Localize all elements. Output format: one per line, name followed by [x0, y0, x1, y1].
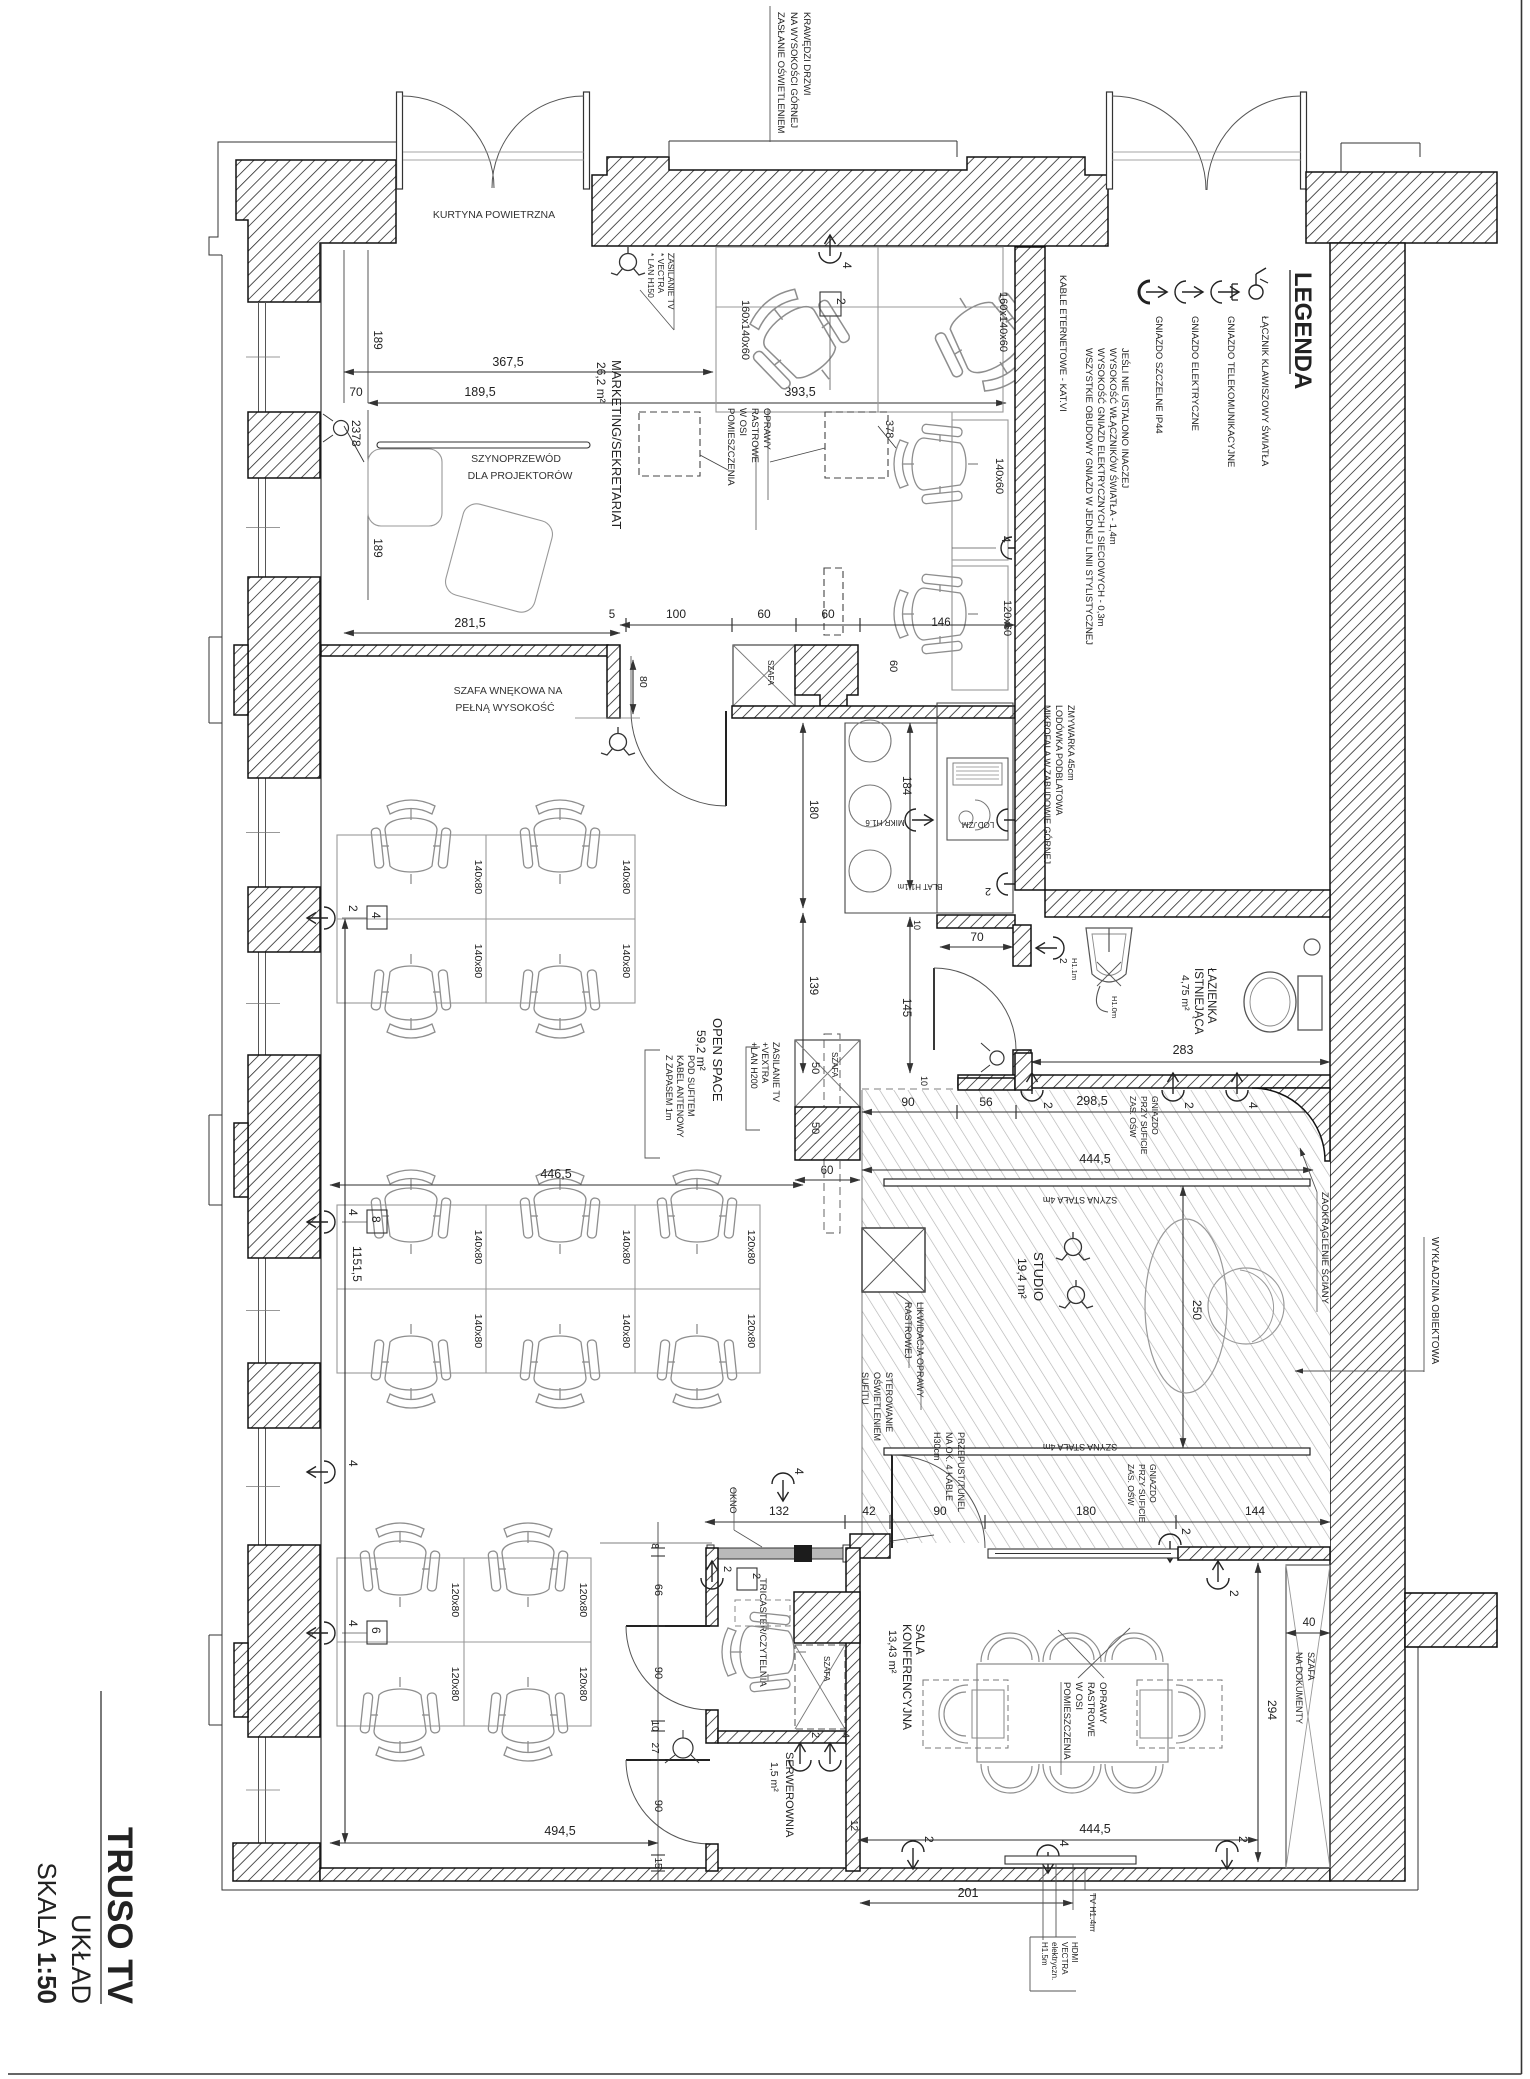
svg-text:4: 4: [346, 1209, 360, 1216]
svg-text:KABEL ANTENOWY: KABEL ANTENOWY: [675, 1055, 685, 1138]
svg-text:+LAN H200: +LAN H200: [749, 1042, 759, 1089]
svg-text:+VEXTRA: +VEXTRA: [760, 1042, 770, 1083]
svg-text:Z ZAPASEM 1m: Z ZAPASEM 1m: [664, 1055, 674, 1120]
svg-text:DLA PROJEKTORÓW: DLA PROJEKTORÓW: [468, 469, 573, 482]
svg-text:2: 2: [1236, 1836, 1250, 1843]
svg-text:2: 2: [809, 1732, 821, 1738]
svg-text:4: 4: [792, 1468, 806, 1475]
svg-text:SZAFA: SZAFA: [830, 1052, 839, 1078]
svg-text:120x80: 120x80: [449, 1583, 461, 1618]
svg-text:4: 4: [369, 912, 383, 919]
svg-text:189: 189: [371, 330, 383, 349]
svg-text:27: 27: [649, 1742, 660, 1754]
svg-text:STUDIO: STUDIO: [1031, 1252, 1046, 1301]
svg-text:140x60: 140x60: [993, 458, 1005, 494]
svg-text:19,4 m²: 19,4 m²: [1015, 1258, 1029, 1299]
svg-text:60: 60: [821, 607, 835, 621]
svg-text:1,5 m²: 1,5 m²: [768, 1762, 780, 1792]
svg-text:283: 283: [1173, 1043, 1194, 1057]
svg-text:SZAFA: SZAFA: [766, 660, 775, 686]
svg-text:42: 42: [862, 1504, 876, 1518]
svg-text:6: 6: [369, 1627, 383, 1634]
svg-text:120x60: 120x60: [1001, 600, 1013, 636]
svg-text:10: 10: [919, 1076, 929, 1086]
svg-text:4,75 m²: 4,75 m²: [1179, 975, 1191, 1011]
svg-text:2: 2: [922, 1836, 936, 1843]
svg-text:MIKROFALA W ZABUDOWIE GÓRNEJ: MIKROFALA W ZABUDOWIE GÓRNEJ: [1042, 705, 1052, 864]
svg-text:MARKETING/SEKRETARIAT: MARKETING/SEKRETARIAT: [609, 360, 624, 529]
svg-text:TRICASTER/CZYTELNIA: TRICASTER/CZYTELNIA: [757, 1578, 768, 1687]
svg-text:56: 56: [979, 1095, 993, 1109]
svg-text:H1.0m: H1.0m: [1110, 996, 1119, 1018]
svg-text:80: 80: [637, 676, 649, 688]
svg-text:140x80: 140x80: [620, 860, 632, 895]
svg-text:250: 250: [1190, 1300, 1204, 1320]
svg-text:GNIAZDO: GNIAZDO: [1148, 1464, 1158, 1503]
svg-text:KABLE ETERNETOWE - KAT.VI: KABLE ETERNETOWE - KAT.VI: [1057, 275, 1068, 412]
svg-text:4: 4: [999, 536, 1013, 543]
svg-text:60: 60: [887, 660, 899, 672]
svg-text:180: 180: [1076, 1504, 1096, 1518]
svg-text:2: 2: [1057, 958, 1068, 964]
svg-text:1151,5: 1151,5: [350, 1246, 364, 1282]
svg-text:4: 4: [346, 1620, 360, 1627]
svg-text:OPRAWY: OPRAWY: [1097, 1682, 1108, 1725]
svg-text:2: 2: [1179, 1528, 1193, 1535]
svg-text:TRUSO TV: TRUSO TV: [100, 1827, 139, 2005]
svg-text:494,5: 494,5: [544, 1824, 575, 1838]
svg-text:160x140x60: 160x140x60: [997, 292, 1009, 352]
svg-text:LODÓWKA PODBLATOWA: LODÓWKA PODBLATOWA: [1054, 705, 1064, 815]
svg-text:367,5: 367,5: [492, 355, 523, 369]
svg-text:10: 10: [912, 920, 922, 930]
svg-text:ISTNIEJĄCA: ISTNIEJĄCA: [1192, 968, 1204, 1035]
svg-text:140x80: 140x80: [620, 1314, 632, 1349]
svg-text:2: 2: [346, 905, 360, 912]
svg-text:SALA: SALA: [913, 1624, 927, 1655]
svg-text:180: 180: [807, 800, 819, 819]
svg-text:SZAFA: SZAFA: [1306, 1652, 1316, 1681]
svg-text:RASTROWE: RASTROWE: [1085, 1682, 1096, 1737]
svg-text:144: 144: [1245, 1504, 1265, 1518]
svg-text:4: 4: [840, 262, 854, 269]
svg-text:15: 15: [652, 1857, 663, 1869]
svg-text:120x80: 120x80: [577, 1583, 589, 1618]
svg-text:POMIESZCZENIA: POMIESZCZENIA: [725, 408, 736, 486]
svg-text:146: 146: [931, 617, 950, 629]
svg-text:ŁĄCZNIK KLAWISZOWY ŚWIATŁA: ŁĄCZNIK KLAWISZOWY ŚWIATŁA: [1259, 316, 1271, 467]
svg-text:90: 90: [652, 1667, 664, 1679]
svg-text:60: 60: [757, 607, 771, 621]
svg-text:140x80: 140x80: [620, 1230, 632, 1265]
svg-text:4: 4: [346, 1460, 360, 1467]
svg-text:OPEN SPACE: OPEN SPACE: [710, 1018, 725, 1102]
svg-text:281,5: 281,5: [454, 616, 485, 630]
svg-text:H1.1m: H1.1m: [1070, 958, 1079, 980]
svg-text:378: 378: [883, 420, 895, 438]
svg-text:4: 4: [839, 1732, 851, 1738]
svg-text:GNIAZDO ELEKTRYCZNE: GNIAZDO ELEKTRYCZNE: [1189, 316, 1200, 431]
svg-text:60: 60: [821, 1165, 834, 1177]
svg-text:26,2 m²: 26,2 m²: [594, 362, 608, 403]
svg-text:OŚWIETLENIEM: OŚWIETLENIEM: [872, 1372, 883, 1441]
svg-text:SZAFA: SZAFA: [822, 1656, 831, 1682]
svg-text:ZAOKRĄGLENIE ŚCIANY: ZAOKRĄGLENIE ŚCIANY: [1319, 1192, 1331, 1305]
svg-text:* LAN H150: * LAN H150: [646, 253, 656, 298]
svg-text:120x80: 120x80: [745, 1230, 757, 1265]
svg-text:189: 189: [371, 538, 383, 557]
svg-text:W OSI: W OSI: [737, 408, 748, 436]
svg-text:NA OK. 4 KABLE: NA OK. 4 KABLE: [944, 1432, 954, 1501]
svg-text:13,43 m²: 13,43 m²: [886, 1630, 898, 1674]
svg-text:VECTRA: VECTRA: [1060, 1942, 1069, 1975]
svg-text:PRZY SUFICIE: PRZY SUFICIE: [1137, 1464, 1147, 1523]
svg-text:SUFITU: SUFITU: [860, 1372, 870, 1405]
svg-text:GNIAZDO: GNIAZDO: [1150, 1096, 1160, 1135]
svg-text:140x80: 140x80: [472, 860, 484, 895]
svg-text:OKNO: OKNO: [728, 1487, 738, 1514]
svg-text:70: 70: [349, 385, 363, 399]
svg-text:WSZYSTKIE OBUDOWY GNIAZD W JED: WSZYSTKIE OBUDOWY GNIAZD W JEDNEJ LINII …: [1083, 348, 1094, 645]
svg-text:POD SUFITEM: POD SUFITEM: [686, 1055, 696, 1117]
svg-text:ZAS. OŚW: ZAS. OŚW: [1128, 1096, 1139, 1138]
svg-text:201: 201: [958, 1886, 979, 1900]
svg-text:STEROWANIE: STEROWANIE: [884, 1372, 894, 1432]
svg-text:444,5: 444,5: [1079, 1152, 1110, 1166]
svg-text:HDMI: HDMI: [1070, 1942, 1079, 1962]
svg-text:LOD./ZM: LOD./ZM: [961, 820, 994, 829]
svg-text:12: 12: [848, 1820, 859, 1832]
svg-text:189,5: 189,5: [464, 385, 495, 399]
svg-text:446,5: 446,5: [540, 1167, 571, 1181]
svg-text:GNIAZDO TELEKOMUNIKACYJNE: GNIAZDO TELEKOMUNIKACYJNE: [1225, 316, 1236, 467]
svg-text:ZMYWARKA 45cm: ZMYWARKA 45cm: [1066, 705, 1076, 781]
svg-text:LIKWIDACJA OPRAWY: LIKWIDACJA OPRAWY: [915, 1302, 925, 1398]
svg-text:WYSOKOŚĆ WŁĄCZNIKÓW ŚWIATŁA -: WYSOKOŚĆ WŁĄCZNIKÓW ŚWIATŁA - 1,4m: [1107, 348, 1119, 545]
svg-text:132: 132: [769, 1504, 789, 1518]
svg-text:NA WYSOKOŚCI GÓRNEJ: NA WYSOKOŚCI GÓRNEJ: [788, 12, 800, 128]
svg-text:RASTROWEJ: RASTROWEJ: [903, 1302, 913, 1359]
svg-text:PRZEPUST/TUNEL: PRZEPUST/TUNEL: [956, 1432, 966, 1512]
svg-text:OPRAWY: OPRAWY: [761, 408, 772, 451]
svg-text:4: 4: [1246, 1102, 1260, 1109]
svg-text:WYSOKOŚĆ GNIAZD ELEKTRYCZNYCH: WYSOKOŚĆ GNIAZD ELEKTRYCZNYCH I SIECIOWY…: [1095, 348, 1107, 627]
svg-text:184: 184: [900, 776, 912, 796]
svg-text:KURTYNA POWIETRZNA: KURTYNA POWIETRZNA: [433, 209, 555, 221]
svg-text:444,5: 444,5: [1079, 1822, 1110, 1836]
svg-text:8: 8: [649, 1543, 660, 1549]
svg-text:elektryczn.: elektryczn.: [1050, 1942, 1059, 1980]
svg-text:NA DOKUMENTY: NA DOKUMENTY: [1294, 1652, 1304, 1724]
svg-text:66: 66: [652, 1584, 664, 1596]
svg-text:139: 139: [807, 976, 819, 995]
svg-text:50: 50: [809, 1122, 821, 1134]
svg-text:140x80: 140x80: [620, 944, 632, 979]
svg-text:140x80: 140x80: [472, 1230, 484, 1265]
svg-text:90: 90: [901, 1095, 915, 1109]
svg-text:W OSI: W OSI: [1073, 1682, 1084, 1710]
svg-text:ŁAZIENKA: ŁAZIENKA: [1205, 968, 1217, 1024]
svg-text:GNIAZDO SZCZELNE IP44: GNIAZDO SZCZELNE IP44: [1153, 316, 1164, 434]
svg-text:ZAS. OŚW: ZAS. OŚW: [1126, 1464, 1137, 1506]
svg-text:160x140x60: 160x140x60: [739, 300, 751, 360]
svg-text:145: 145: [900, 998, 912, 1017]
svg-text:40: 40: [1303, 1617, 1316, 1629]
svg-text:MIKR H1.6: MIKR H1.6: [865, 818, 905, 827]
svg-text:PRZY SUFICIE: PRZY SUFICIE: [1139, 1096, 1149, 1155]
svg-text:2: 2: [985, 885, 991, 897]
svg-text:120x80: 120x80: [449, 1667, 461, 1702]
svg-text:ZASŁANIE OŚWIETLENIEM: ZASŁANIE OŚWIETLENIEM: [775, 12, 787, 133]
svg-text:BLAT H1.1m: BLAT H1.1m: [897, 882, 942, 891]
svg-text:100: 100: [666, 607, 686, 621]
svg-text:SZYNOPRZEWÓD: SZYNOPRZEWÓD: [471, 452, 561, 465]
svg-text:70: 70: [970, 930, 984, 944]
svg-text:2: 2: [721, 1566, 733, 1572]
svg-text:2: 2: [750, 1573, 762, 1579]
svg-text:2: 2: [1182, 1102, 1196, 1109]
svg-text:H30cm: H30cm: [932, 1432, 942, 1461]
svg-text:* VECTRA: * VECTRA: [656, 253, 666, 293]
svg-text:UKŁAD: UKŁAD: [66, 1914, 96, 2004]
svg-text:TV H1.4m: TV H1.4m: [1088, 1893, 1098, 1931]
svg-text:H1.5m: H1.5m: [1040, 1942, 1049, 1966]
svg-text:140x80: 140x80: [472, 944, 484, 979]
svg-text:SERWEROWNIA: SERWEROWNIA: [783, 1752, 795, 1838]
svg-text:140x80: 140x80: [472, 1314, 484, 1349]
svg-text:PEŁNĄ WYSOKOŚĆ: PEŁNĄ WYSOKOŚĆ: [455, 701, 555, 714]
svg-text:5: 5: [609, 609, 615, 621]
svg-text:KRAWĘDZI DRZWI: KRAWĘDZI DRZWI: [801, 12, 812, 96]
svg-text:ZASILANIE TV: ZASILANIE TV: [771, 1042, 781, 1102]
svg-text:2: 2: [1041, 1102, 1055, 1109]
svg-text:298,5: 298,5: [1076, 1094, 1107, 1108]
svg-text:JEŚLI NIE USTALONO INACZEJ: JEŚLI NIE USTALONO INACZEJ: [1119, 348, 1131, 488]
svg-text:LEGENDA: LEGENDA: [1289, 272, 1316, 389]
svg-text:120x80: 120x80: [745, 1314, 757, 1349]
svg-text:ZASILANIE TV: ZASILANIE TV: [666, 253, 676, 310]
svg-text:WYKŁADZINA OBIEKTOWA: WYKŁADZINA OBIEKTOWA: [1429, 1237, 1440, 1365]
svg-text:90: 90: [652, 1800, 664, 1812]
svg-text:SZYNA STAŁA 4m: SZYNA STAŁA 4m: [1043, 1195, 1117, 1205]
svg-text:2: 2: [834, 298, 848, 305]
svg-text:10: 10: [649, 1720, 660, 1732]
svg-text:120x80: 120x80: [577, 1667, 589, 1702]
svg-text:2: 2: [1227, 1590, 1241, 1597]
svg-text:4: 4: [1057, 1840, 1071, 1847]
svg-text:POMIESZCZENIA: POMIESZCZENIA: [1061, 1682, 1072, 1760]
svg-text:2378: 2378: [349, 420, 363, 447]
svg-text:90: 90: [933, 1504, 947, 1518]
svg-text:KONFERENCYJNA: KONFERENCYJNA: [900, 1624, 914, 1730]
svg-text:RASTROWE: RASTROWE: [749, 408, 760, 463]
svg-text:294: 294: [1265, 1700, 1279, 1720]
svg-text:8: 8: [369, 1216, 383, 1223]
svg-text:SKALA 1:50: SKALA 1:50: [32, 1862, 62, 2004]
svg-text:SZYNA STAŁA 4m: SZYNA STAŁA 4m: [1043, 1442, 1117, 1452]
svg-text:SZAFA WNĘKOWA NA: SZAFA WNĘKOWA NA: [454, 685, 563, 697]
svg-text:50: 50: [809, 1062, 821, 1074]
